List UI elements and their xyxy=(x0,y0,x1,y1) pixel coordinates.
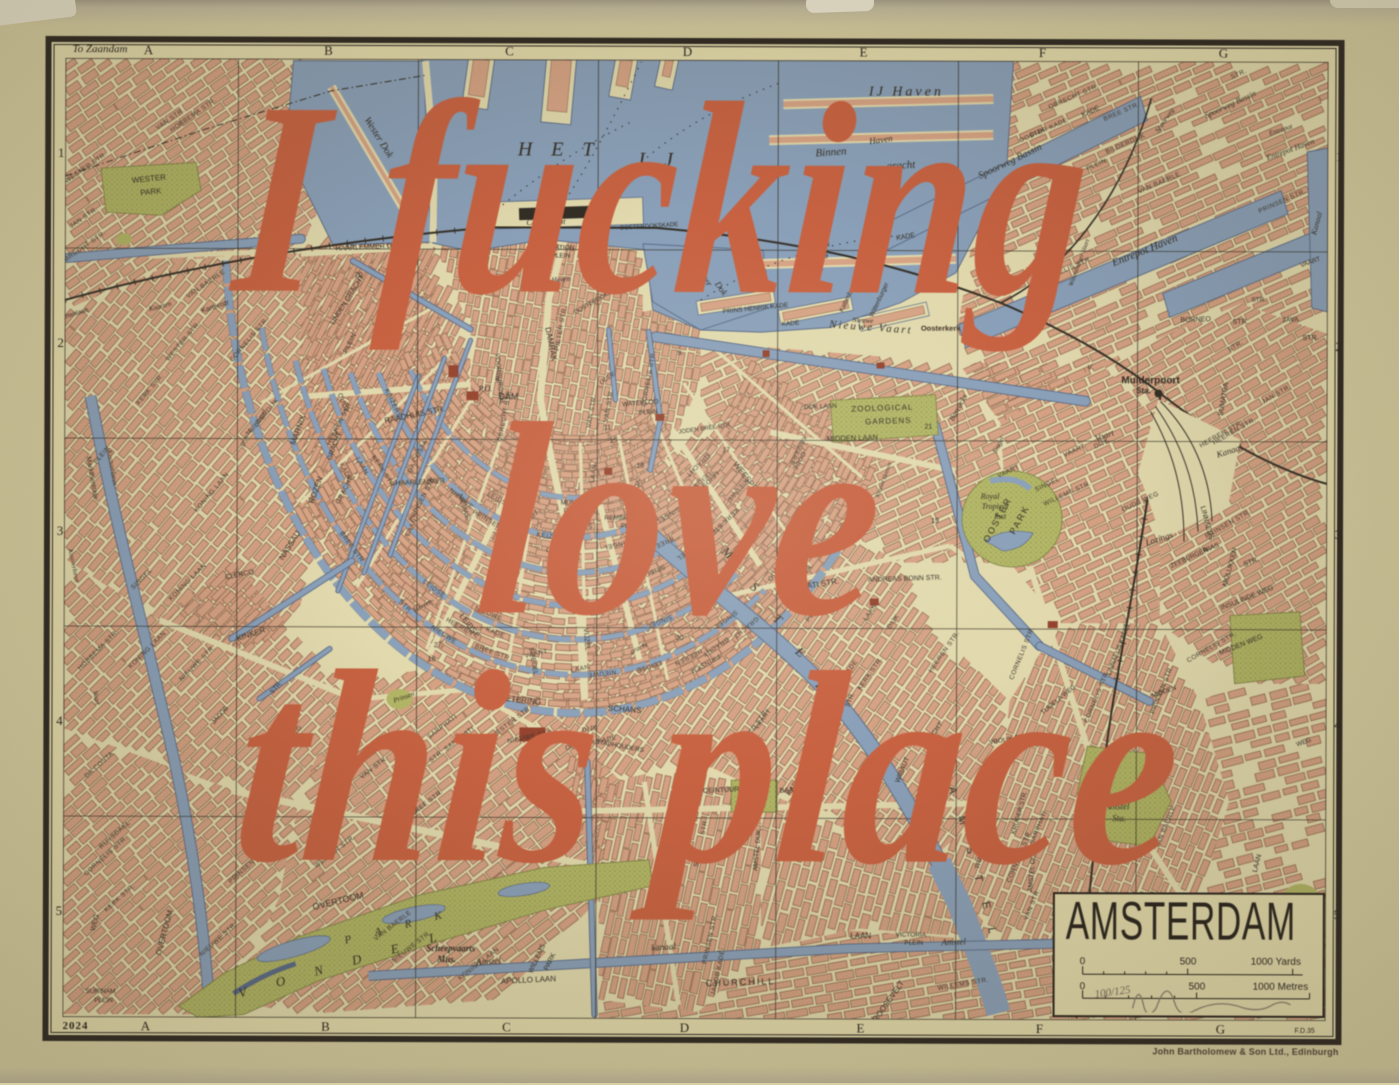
svg-text:0: 0 xyxy=(1080,956,1086,967)
svg-text:1000 Metres: 1000 Metres xyxy=(1253,982,1309,993)
svg-text:500: 500 xyxy=(1180,957,1197,968)
svg-text:0: 0 xyxy=(1080,981,1086,992)
svg-text:500: 500 xyxy=(1189,982,1206,993)
svg-text:1000 Yards: 1000 Yards xyxy=(1251,957,1301,968)
